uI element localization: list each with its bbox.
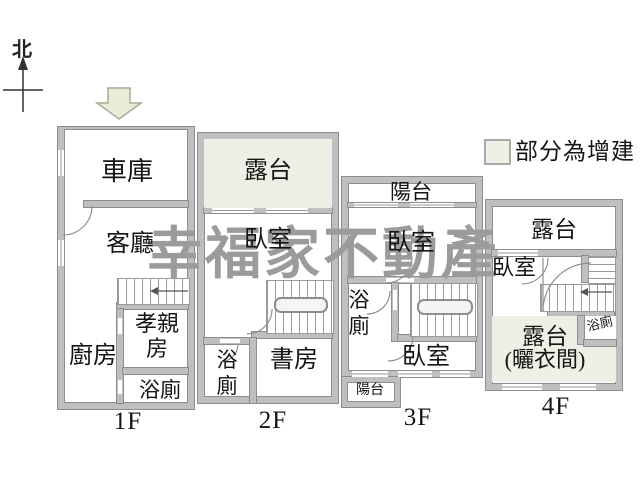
stairs-2f-handrail	[274, 297, 328, 313]
floor-label-1f: 1F	[88, 408, 168, 436]
floor-label-2f: 2F	[233, 407, 313, 435]
compass-icon	[3, 56, 43, 112]
door-gap-2f-bath	[220, 339, 240, 343]
legend-addition-swatch	[484, 139, 511, 165]
floor-plan-canvas: 北 部分為增建 車庫 客廳 廚房 孝親房 浴廁 1F 露台 臥室 浴廁 書房 2…	[0, 0, 640, 480]
window-1f-left-mid	[58, 240, 64, 266]
window-3f-bottom-mid	[398, 371, 432, 377]
window-4f-bottom-left	[502, 384, 542, 390]
window-3f-bottom-right	[440, 371, 470, 377]
room-label-1f-bath: 浴廁	[110, 379, 210, 403]
window-4f-bottom-right	[560, 384, 596, 390]
room-label-3f-bath: 浴廁	[346, 287, 372, 340]
window-3f-bottom-left	[352, 371, 388, 377]
room-label-1f-garage: 車庫	[77, 157, 177, 186]
room-label-2f-terrace: 露台	[218, 158, 318, 185]
room-label-2f-bath: 浴廁	[214, 347, 240, 400]
stairs-4f-lower	[540, 284, 616, 312]
room-label-1f-parents: 孝親房	[130, 312, 184, 361]
wall-1f-garage-living	[84, 201, 188, 207]
room-label-3f-bedroom-bottom: 臥室	[376, 344, 476, 371]
room-label-3f-bedroom-top: 臥室	[361, 230, 461, 257]
floor-label-4f: 4F	[516, 393, 596, 421]
room-label-2f-bedroom: 臥室	[218, 227, 318, 254]
room-label-1f-living: 客廳	[80, 231, 180, 258]
stairs-4f-upper	[588, 256, 616, 284]
entry-arrow-icon	[97, 88, 141, 119]
room-label-4f-terrace-bottom: 露台	[495, 324, 595, 350]
legend-label: 部分為增建	[515, 139, 635, 165]
room-label-1f-kitchen: 廚房	[43, 343, 143, 370]
room-label-2f-study: 書房	[244, 347, 344, 374]
window-1f-left-top	[58, 150, 64, 176]
door-gap-1f-parents	[118, 318, 122, 334]
room-label-4f-bedroom: 臥室	[489, 256, 539, 281]
room-label-3f-balcony-top: 陽台	[361, 181, 461, 205]
stairs-3f-handrail	[417, 299, 473, 315]
compass-north-label: 北	[12, 33, 32, 62]
floor-label-3f: 3F	[378, 404, 458, 432]
room-label-4f-terrace-bottom-sub: (曬衣間)	[490, 348, 600, 373]
room-label-3f-balcony-bottom: 陽台	[345, 383, 395, 399]
room-label-4f-terrace-top: 露台	[504, 217, 604, 243]
door-gap-3f-bath	[393, 290, 397, 310]
